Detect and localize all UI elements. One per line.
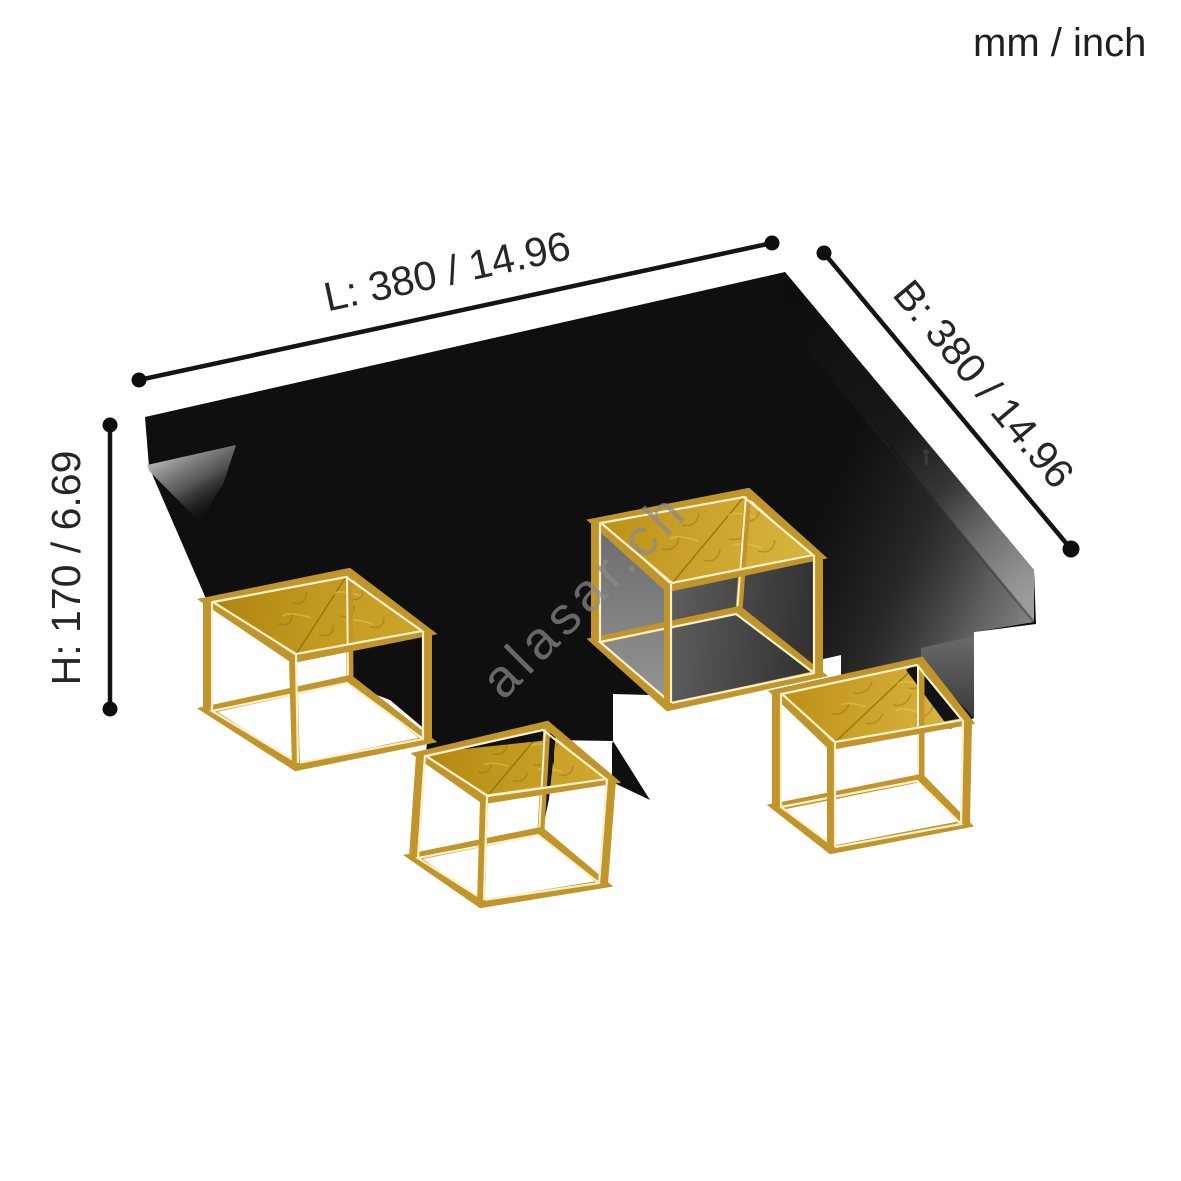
- svg-text:H: 170 / 6.69: H: 170 / 6.69: [43, 451, 89, 686]
- svg-text:mm / inch: mm / inch: [973, 21, 1146, 65]
